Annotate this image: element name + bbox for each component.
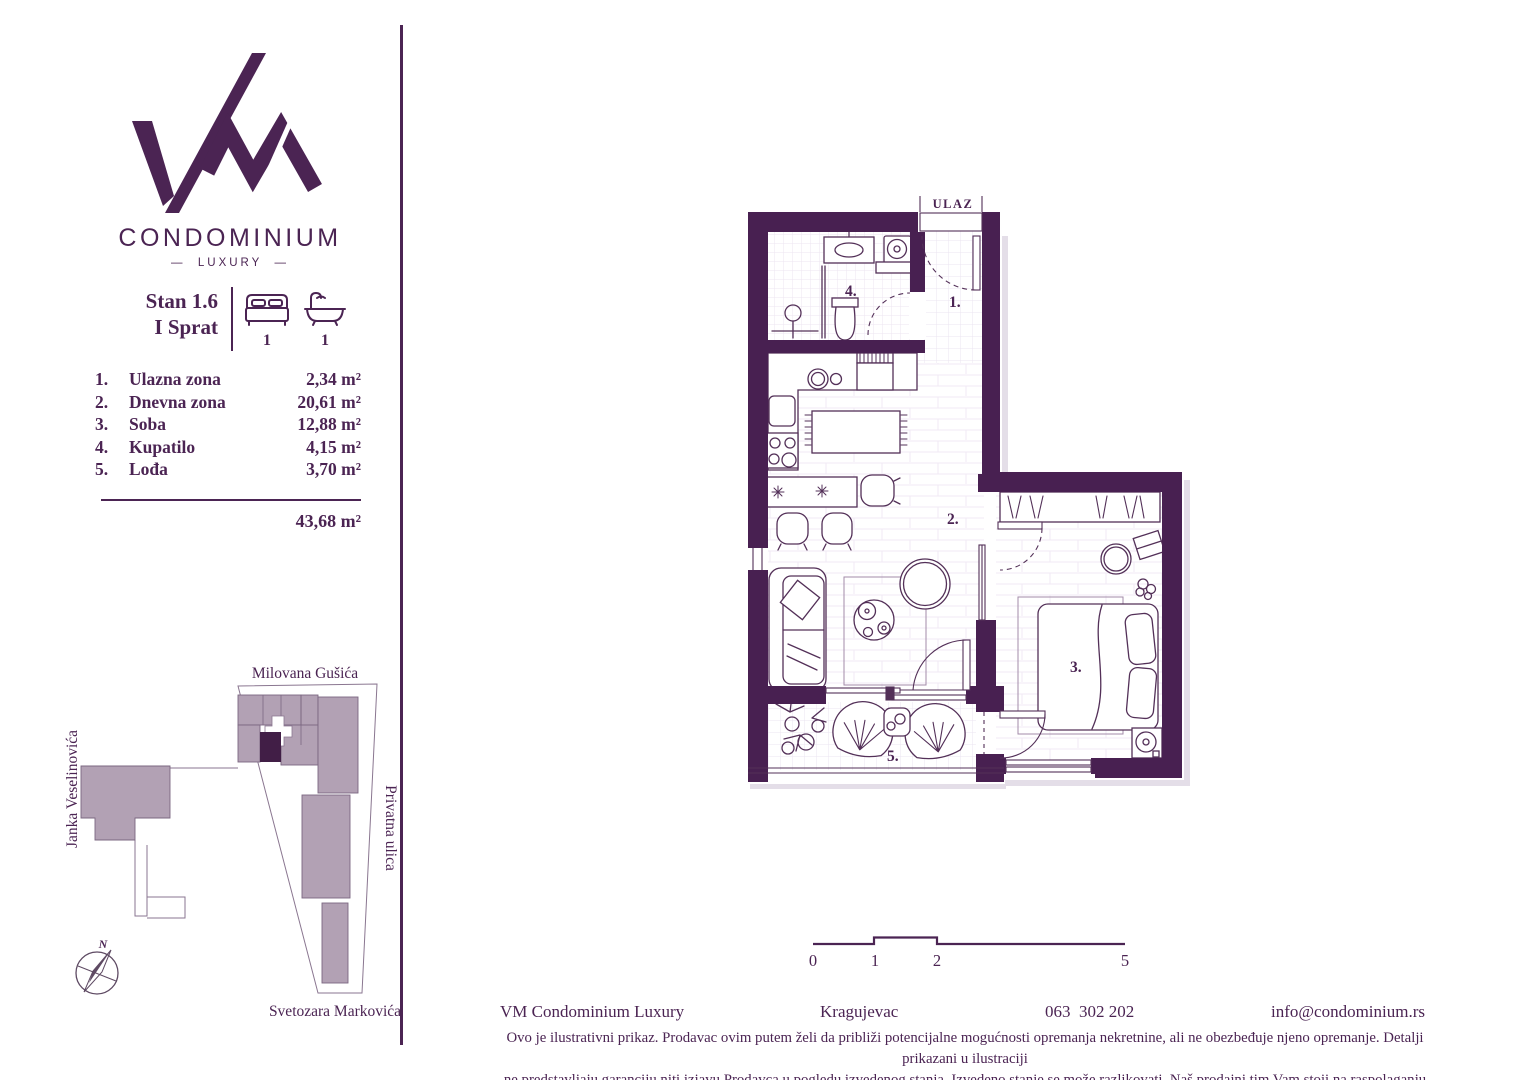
- bathroom-shelf: [876, 262, 911, 273]
- scale-tick-0: 0: [809, 951, 817, 970]
- washing-machine: [884, 236, 911, 263]
- record-cabinet: [1132, 728, 1162, 758]
- vm-monogram-icon: [132, 53, 266, 213]
- brand-name: CONDOMINIUM: [88, 224, 372, 253]
- site-buildings: [81, 695, 358, 983]
- scale-bar: 0 1 2 5: [795, 925, 1145, 980]
- brand-tagline: — LUXURY —: [88, 257, 372, 269]
- compass-north-label: N: [98, 937, 109, 951]
- vm-monogram-m: [207, 128, 315, 188]
- room-name: Ulazna zona: [129, 368, 306, 391]
- room-row: 5. Lođa 3,70 m²: [95, 458, 361, 481]
- room-area: 12,88 m²: [297, 413, 361, 436]
- footer-city: Kragujevac: [820, 1002, 898, 1022]
- room-area: 20,61 m²: [297, 391, 361, 414]
- entrance-label: ULAZ: [933, 197, 974, 211]
- unit-title: Stan 1.6 I Sprat: [0, 288, 218, 340]
- divider: [231, 287, 233, 351]
- street-right: Privatna ulica: [381, 785, 399, 871]
- bathtub-icon: [303, 289, 347, 329]
- bedroom-glass-panel: [979, 545, 985, 620]
- site-plan: N: [40, 640, 420, 1040]
- label-room-3: 3.: [1070, 659, 1082, 676]
- footer-phone[interactable]: 063 302 202: [1045, 1002, 1134, 1022]
- bed-icon: [243, 291, 291, 329]
- room-num: 5.: [95, 458, 129, 481]
- room-area: 3,70 m²: [306, 458, 361, 481]
- loggia-table: [884, 708, 910, 736]
- room-row: 3. Soba 12,88 m²: [95, 413, 361, 436]
- room-area: 2,34 m²: [306, 368, 361, 391]
- scale-tick-2: 2: [933, 951, 941, 970]
- room-list: 1. Ulazna zona 2,34 m² 2. Dnevna zona 20…: [95, 368, 361, 532]
- total-rule: [101, 499, 361, 501]
- panel-divider: [400, 25, 403, 1045]
- disclaimer-line-1: Ovo je ilustrativni prikaz. Prodavac ovi…: [497, 1028, 1433, 1070]
- street-left: Janka Veselinovića: [64, 730, 82, 848]
- disclaimer-line-2: ne predstavljaju garanciju niti izjavu P…: [497, 1070, 1433, 1080]
- vm-logo: [100, 42, 350, 222]
- room-name: Soba: [129, 413, 297, 436]
- kitchen-island: [761, 477, 857, 507]
- stove: [766, 433, 798, 468]
- unit-number: Stan 1.6: [0, 288, 218, 314]
- sofa: [769, 568, 826, 691]
- bedroom-count: 1: [243, 332, 291, 350]
- bedroom-window: [1006, 760, 1091, 772]
- label-room-5: 5.: [887, 748, 899, 765]
- room-num: 4.: [95, 436, 129, 459]
- room-num: 1.: [95, 368, 129, 391]
- round-pouf: [900, 559, 950, 609]
- label-room-2: 2.: [947, 511, 959, 528]
- total-area: 43,68 m²: [95, 511, 361, 532]
- room-row: 1. Ulazna zona 2,34 m²: [95, 368, 361, 391]
- room-num: 3.: [95, 413, 129, 436]
- floorplan-sheet: CONDOMINIUM — LUXURY — Stan 1.6 I Sprat …: [0, 0, 1528, 1080]
- room-name: Dnevna zona: [129, 391, 297, 414]
- room-row: 4. Kupatilo 4,15 m²: [95, 436, 361, 459]
- dining-table: [805, 411, 907, 453]
- disclaimer: Ovo je ilustrativni prikaz. Prodavac ovi…: [497, 1028, 1433, 1080]
- room-num: 2.: [95, 391, 129, 414]
- room-row: 2. Dnevna zona 20,61 m²: [95, 391, 361, 414]
- unit-floor: I Sprat: [0, 314, 218, 340]
- room-area: 4,15 m²: [306, 436, 361, 459]
- room-name: Kupatilo: [129, 436, 306, 459]
- highlighted-unit[interactable]: [260, 732, 281, 762]
- street-top: Milovana Gušića: [252, 665, 358, 683]
- scale-tick-1: 1: [871, 951, 879, 970]
- label-room-1: 1.: [949, 294, 961, 311]
- left-wall-window: [748, 548, 768, 570]
- label-room-4: 4.: [845, 283, 857, 300]
- floor-plan[interactable]: 1. 2. 3. 4. 5. ULAZ: [700, 190, 1220, 830]
- compass-icon: N: [76, 937, 118, 994]
- bathroom-count: 1: [303, 332, 347, 350]
- coffee-table: [854, 600, 894, 640]
- street-bottom: Svetozara Markovića: [269, 1003, 401, 1021]
- room-name: Lođa: [129, 458, 306, 481]
- footer-email[interactable]: info@condominium.rs: [1271, 1002, 1425, 1022]
- scale-tick-5: 5: [1121, 951, 1129, 970]
- bedroom-mirror: [1101, 544, 1131, 574]
- footer-company: VM Condominium Luxury: [500, 1002, 684, 1022]
- wardrobe: [1000, 492, 1160, 522]
